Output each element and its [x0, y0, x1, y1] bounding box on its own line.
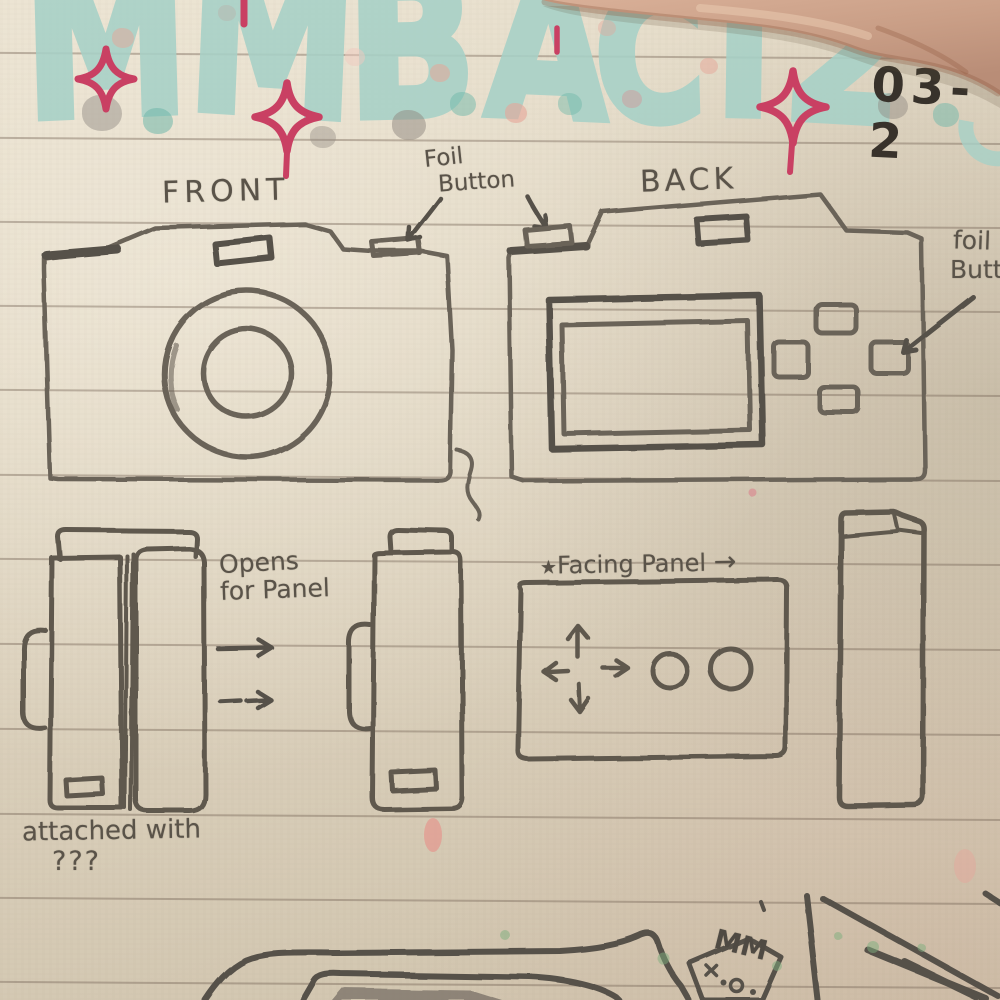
finger-overlay [0, 0, 1000, 1000]
notebook-page-photo: M M B A C T 2 [0, 0, 1000, 1000]
